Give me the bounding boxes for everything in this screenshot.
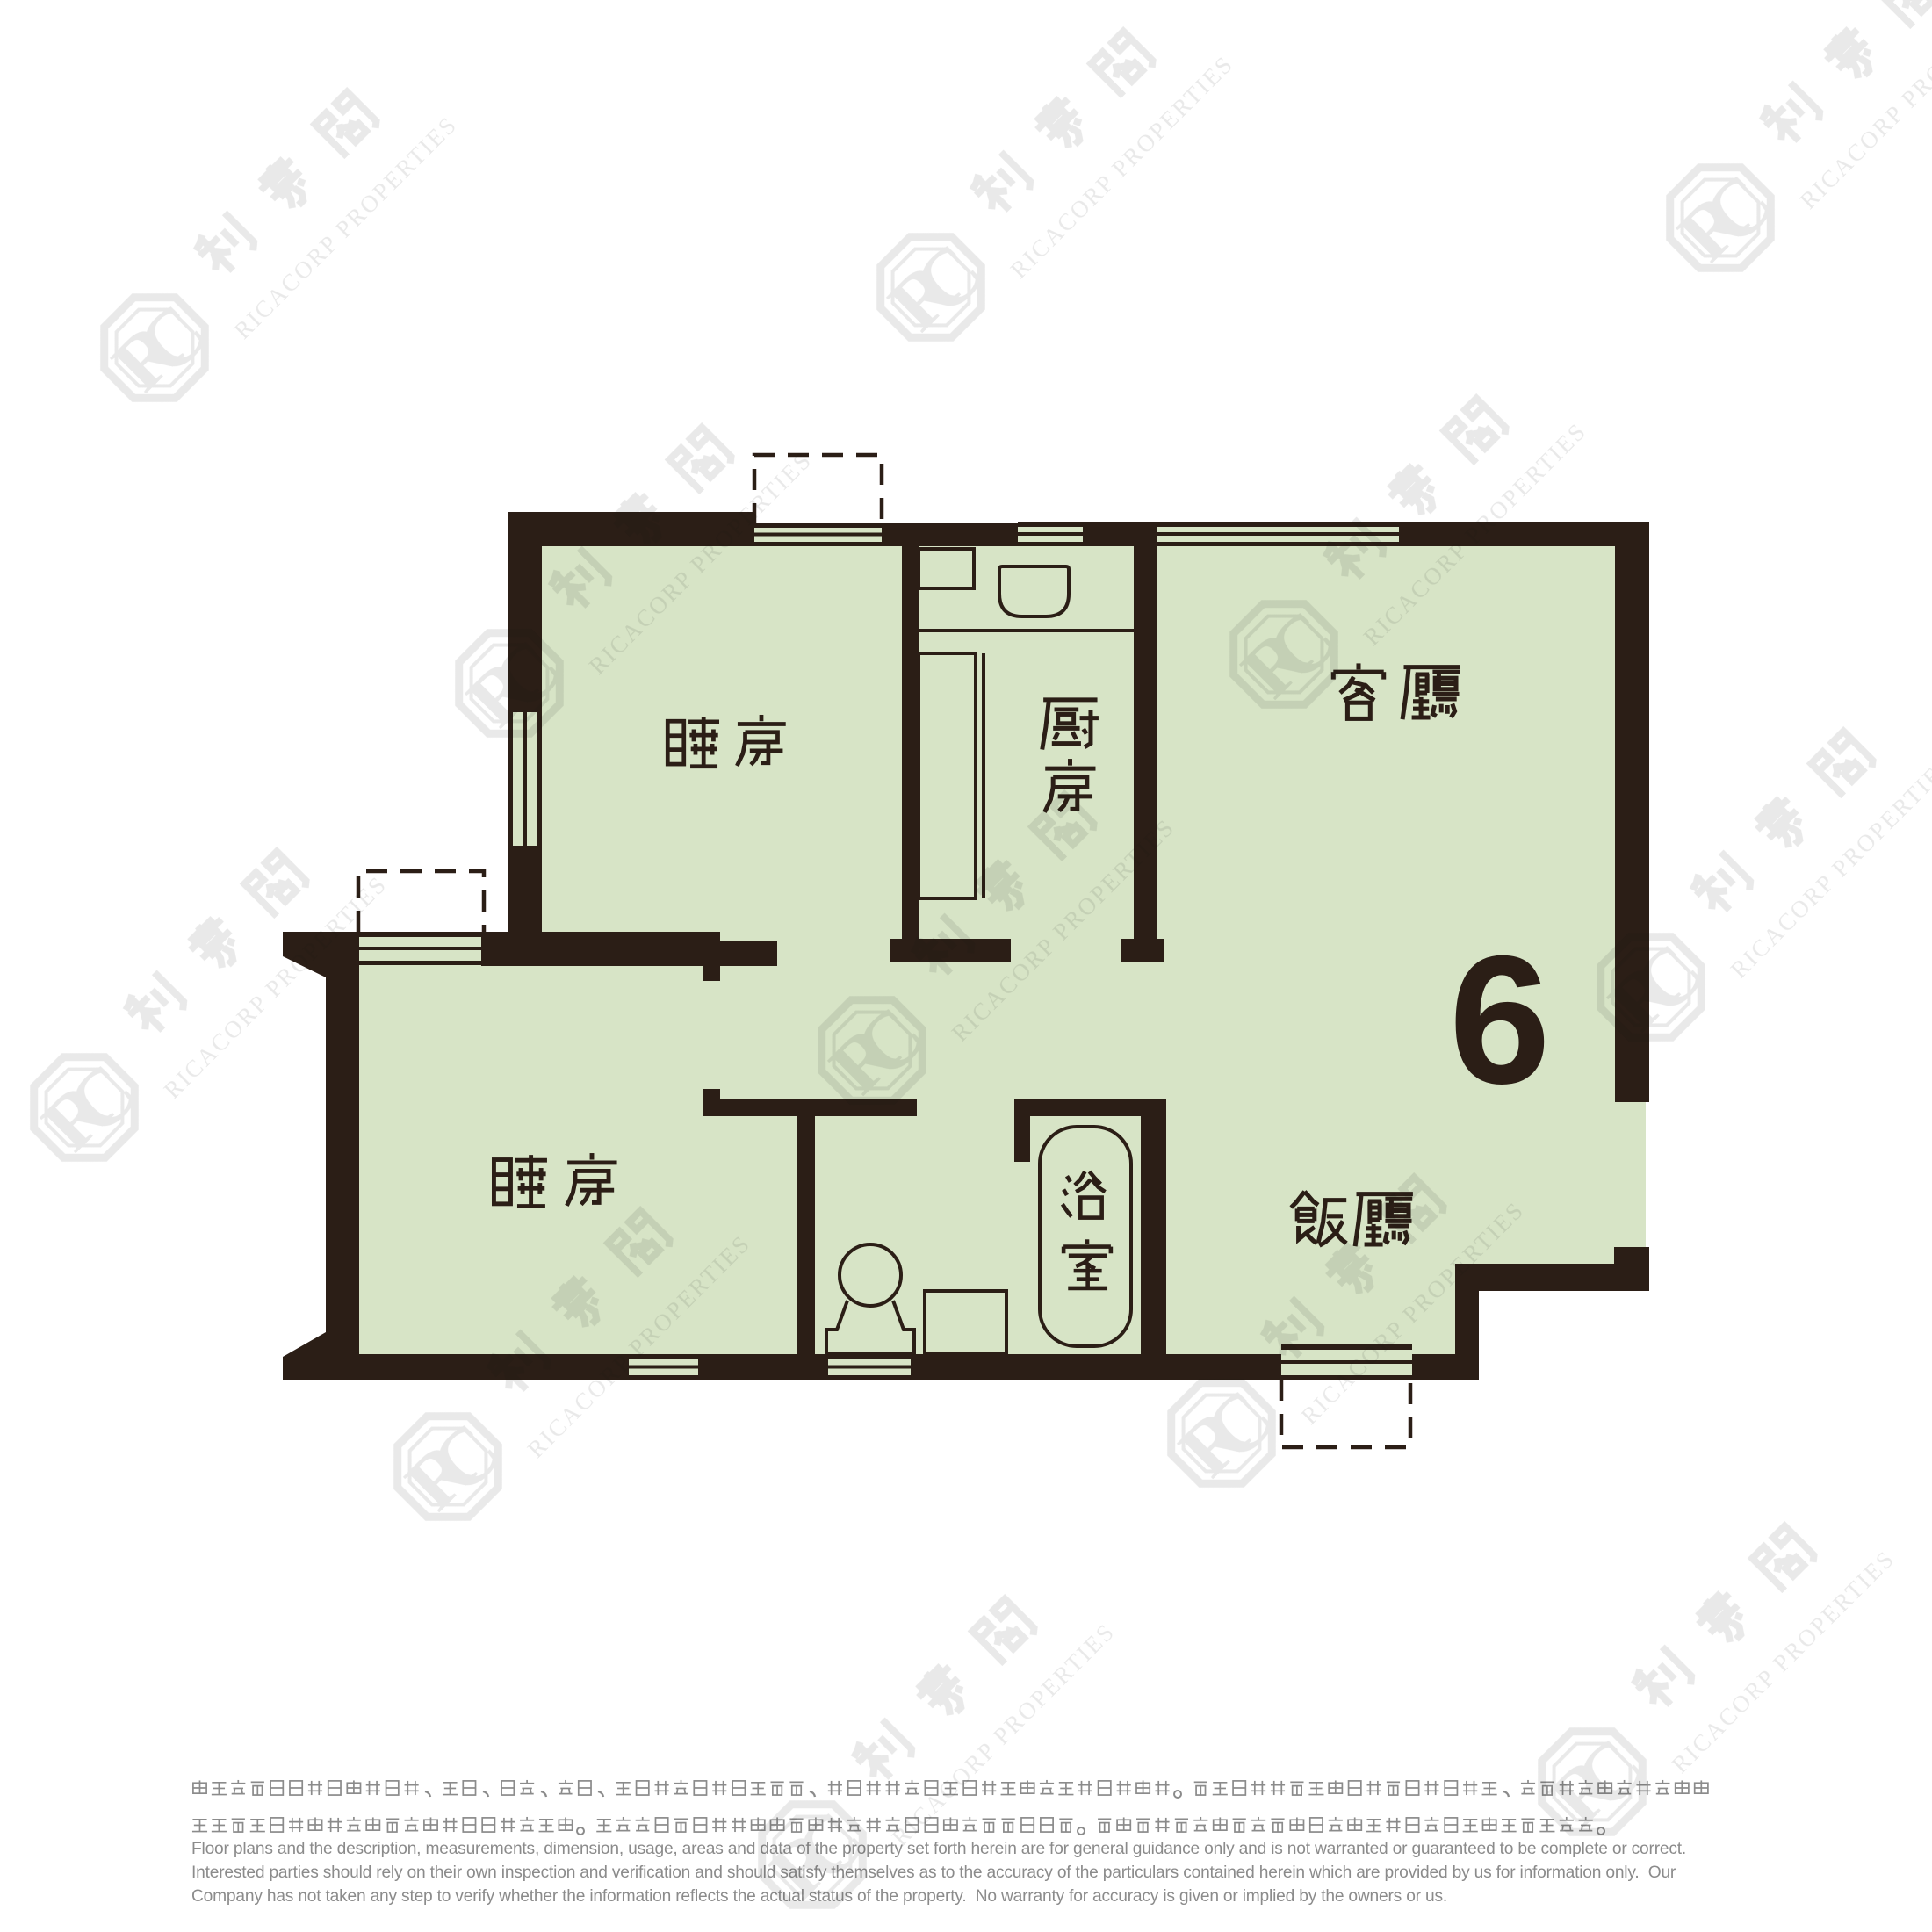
svg-text:Floor plans and the descriptio: Floor plans and the description, measure… xyxy=(191,1840,1686,1858)
svg-text:Interested parties should rely: Interested parties should rely on their … xyxy=(191,1864,1676,1882)
svg-text:6: 6 xyxy=(1449,919,1551,1122)
